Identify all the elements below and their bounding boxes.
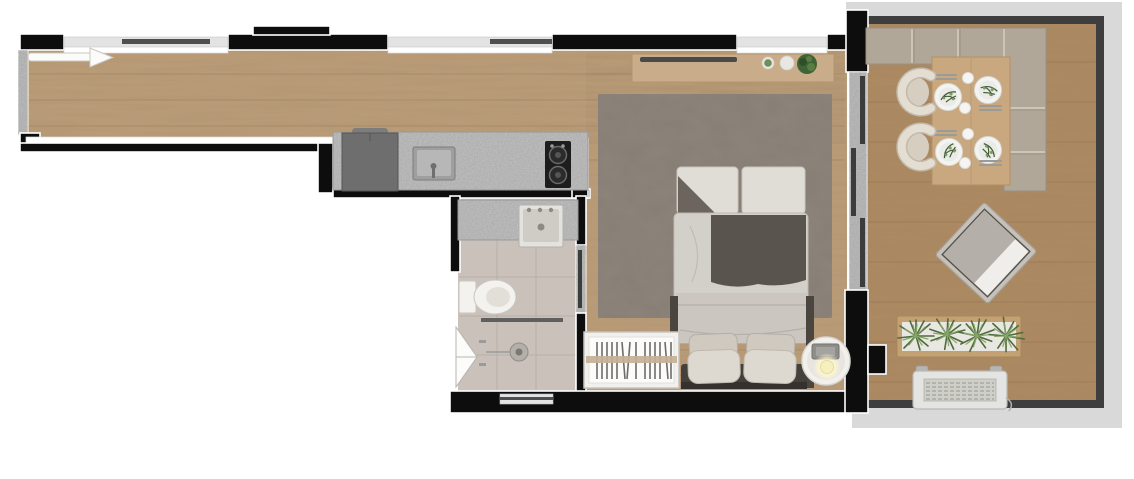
slatted-bench — [584, 332, 679, 388]
bedside-table — [802, 337, 850, 385]
cooktop — [545, 141, 571, 188]
dining-chair-2 — [902, 128, 931, 166]
planter-box — [897, 312, 1030, 359]
wall-top-2-pier — [253, 26, 330, 35]
wall-balcony-corner — [846, 10, 868, 72]
kitchen-sink — [413, 147, 455, 180]
table-lamp — [821, 361, 834, 374]
throw-blanket — [711, 215, 806, 287]
bathroom-bottom-window — [500, 394, 553, 404]
wall-top-2 — [228, 34, 388, 50]
toilet — [459, 280, 516, 314]
floor-plan — [0, 0, 1134, 479]
decor-dish-white — [780, 56, 794, 70]
window-top-3 — [737, 37, 827, 53]
refrigerator — [342, 128, 398, 191]
vanity-sink — [519, 205, 563, 247]
window-top-1 — [64, 37, 228, 53]
wall-top-3 — [552, 34, 737, 50]
sideboard — [632, 54, 834, 82]
floor-plan-canvas — [0, 0, 1134, 479]
ac-unit — [913, 366, 1011, 411]
bedroom — [584, 54, 850, 389]
bathroom-pocket-door — [576, 245, 586, 313]
potted-plant — [797, 54, 817, 74]
shower-screen — [481, 318, 563, 322]
wall-balcony-jog — [868, 345, 886, 374]
dining-chair-1 — [902, 73, 931, 111]
wall-kitchen-step — [318, 143, 333, 193]
wall-hall-bottom — [20, 143, 333, 152]
pillow-stack-right — [743, 333, 797, 384]
kitchen — [333, 128, 588, 191]
pillow-stack-left — [687, 333, 741, 384]
dining-table — [932, 57, 1010, 185]
wall-top-1 — [20, 34, 64, 50]
balcony-sliding-door — [849, 72, 867, 290]
window-top-2 — [388, 37, 552, 53]
foot-cushion-right — [742, 167, 805, 214]
